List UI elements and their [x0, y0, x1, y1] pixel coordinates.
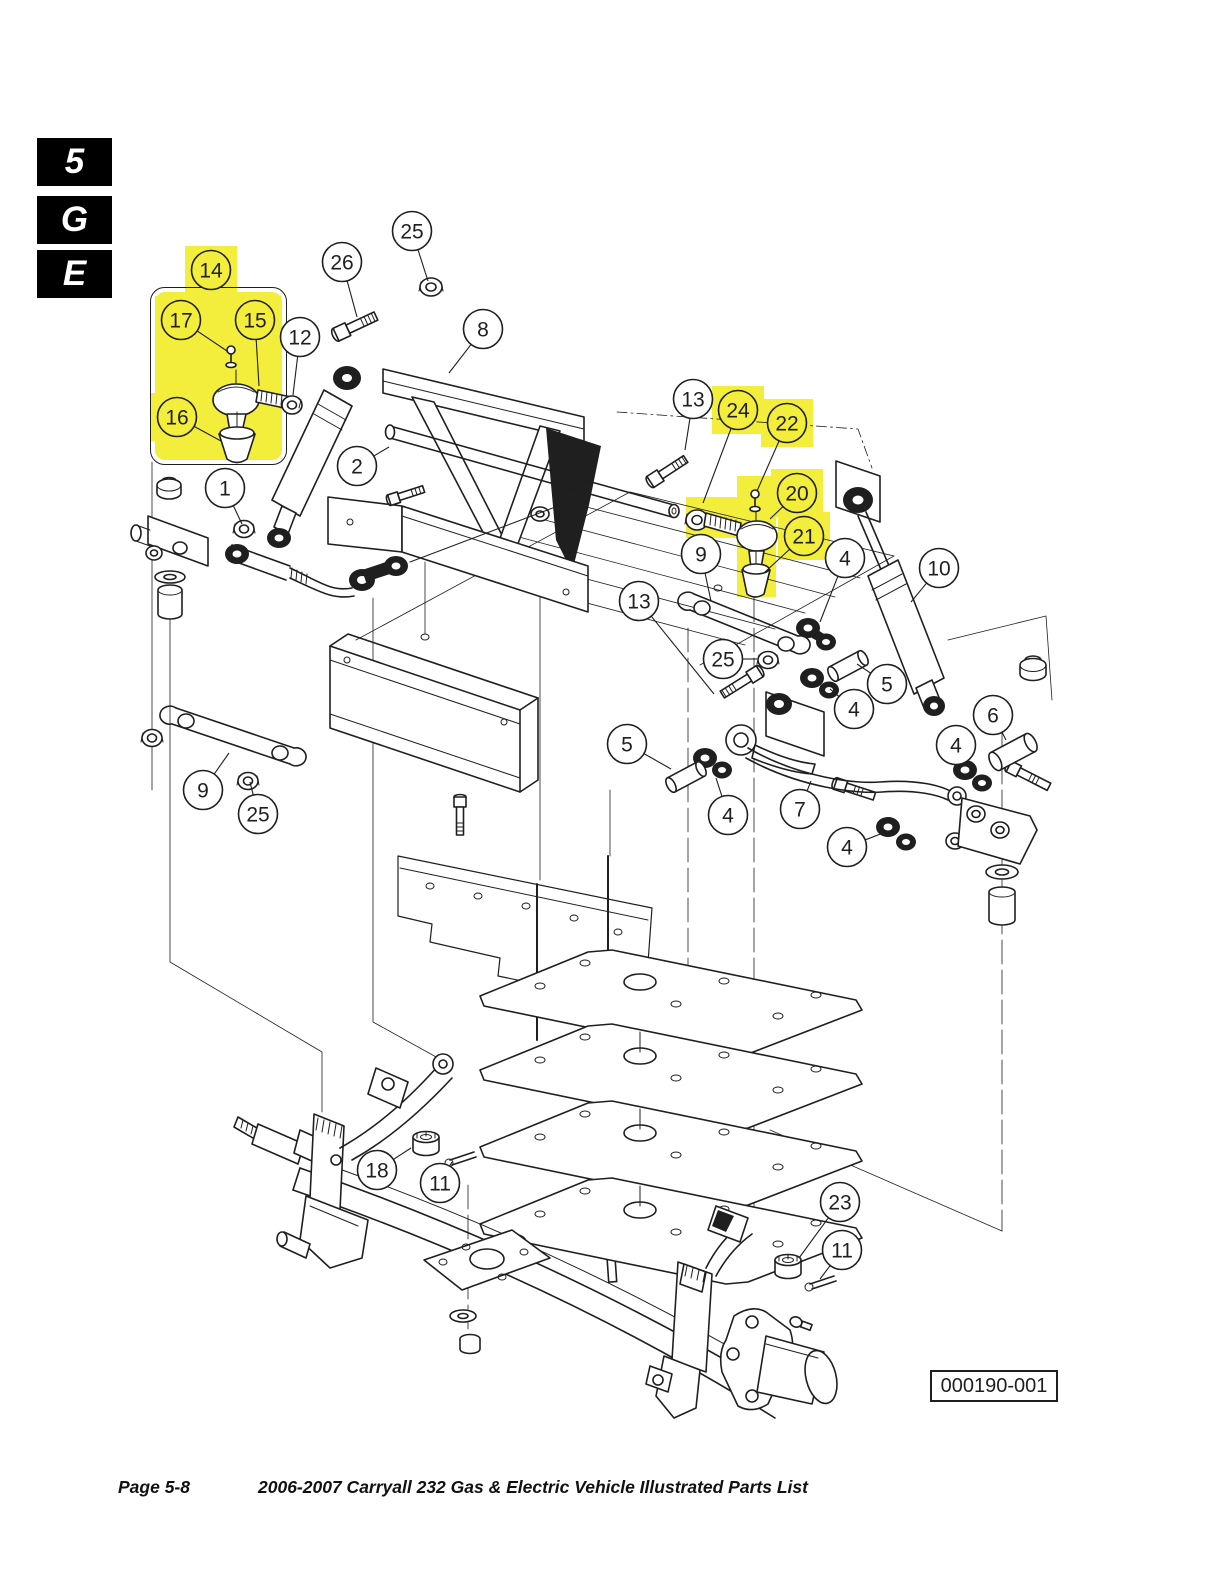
callout-10: 10 [911, 549, 959, 603]
part-crossmember [330, 634, 538, 792]
callout-number: 4 [839, 548, 851, 571]
callout-7: 7 [781, 781, 820, 829]
callout-number: 13 [681, 389, 704, 412]
castle-nut [775, 1255, 801, 1279]
pin-nut [146, 546, 162, 560]
part-hardware-column-left [131, 478, 208, 620]
callout-number: 23 [828, 1192, 851, 1215]
callout-leader [449, 344, 471, 373]
tab-label: 5 [65, 142, 84, 182]
nut [141, 730, 163, 747]
callout-number: 24 [726, 400, 750, 423]
callout-leader [293, 356, 298, 395]
callout-13: 13 [674, 380, 713, 451]
callout-number: 12 [288, 327, 311, 350]
callout-number: 25 [400, 221, 423, 244]
stack-plate [480, 1178, 862, 1284]
callout-4: 4 [830, 689, 874, 729]
callout-14: 14 [192, 251, 231, 290]
callout-number: 16 [165, 407, 188, 430]
callout-26: 26 [323, 243, 362, 318]
callout-leader [644, 754, 671, 769]
callout-number: 9 [695, 544, 707, 567]
callout-number: 18 [365, 1160, 388, 1183]
callout-number: 25 [711, 649, 734, 672]
figure-number-box: 000190-001 [931, 1371, 1057, 1401]
part-bushings-4a [796, 618, 836, 651]
callout-11: 11 [820, 1231, 862, 1280]
callout-number: 11 [429, 1173, 451, 1196]
section-tab-e: E [37, 250, 112, 298]
callout-13: 13 [620, 582, 715, 695]
cotter-pin [445, 1152, 476, 1167]
callout-number: 25 [246, 804, 269, 827]
page-number: Page 5-8 [118, 1477, 190, 1498]
callout-9: 9 [184, 753, 230, 810]
castle-nut [413, 1132, 439, 1156]
callout-18: 18 [358, 1148, 412, 1190]
part-nut-25-mid [757, 652, 779, 669]
figure-number: 000190-001 [941, 1375, 1048, 1397]
part-spacer-5b [664, 760, 709, 794]
callout-number: 7 [794, 799, 806, 822]
callout-number: 21 [792, 526, 815, 549]
callout-number: 2 [351, 456, 363, 479]
callout-leader [865, 833, 883, 840]
callout-leader [214, 753, 229, 774]
part-bolt-small-left [385, 484, 425, 506]
callout-number: 13 [627, 591, 650, 614]
callout-number: 5 [621, 734, 633, 757]
part-bolt-vertical [454, 795, 466, 836]
callout-number: 6 [987, 705, 999, 728]
callout-4: 4 [937, 726, 976, 767]
part-spacer-5a [826, 649, 871, 683]
callout-leader [820, 576, 838, 622]
callout-number: 8 [477, 319, 489, 342]
part-nut-25-lower-left [237, 773, 259, 790]
callout-4: 4 [820, 539, 865, 623]
callout-number: 4 [950, 735, 962, 758]
callout-number: 9 [197, 780, 209, 803]
parts-diagram: 000190-001 14262581715121621132422202194… [0, 0, 1224, 1584]
callout-number: 17 [169, 310, 192, 333]
callout-1: 1 [206, 469, 245, 525]
grease-stud [789, 1315, 813, 1332]
nut [460, 1335, 480, 1354]
part-link-9-lower [141, 706, 306, 766]
shock-eye-bushing [333, 366, 361, 390]
callout-number: 1 [219, 478, 231, 501]
callout-4: 4 [828, 828, 884, 867]
section-tab-g: G [37, 196, 112, 244]
document-title: 2006-2007 Carryall 232 Gas & Electric Ve… [258, 1477, 808, 1498]
lock-nut [1020, 656, 1046, 681]
nut-on-frame [531, 507, 549, 521]
callout-4: 4 [709, 778, 748, 835]
callout-number: 14 [199, 260, 223, 283]
tab-label: G [61, 200, 88, 240]
tab-label: E [63, 254, 86, 294]
callout-leader [347, 281, 357, 317]
callout-number: 4 [722, 805, 734, 828]
part-plate-stack [480, 856, 862, 1284]
callout-leader [716, 778, 722, 796]
callout-leader [911, 583, 927, 602]
callout-number: 11 [831, 1240, 853, 1263]
callout-leader [418, 250, 428, 281]
manual-page: 5 G E [0, 0, 1224, 1584]
callout-number: 26 [330, 252, 353, 275]
part-bolt-26 [330, 310, 379, 343]
callout-number: 15 [243, 310, 266, 333]
callout-5: 5 [608, 725, 672, 770]
callout-6: 6 [974, 696, 1013, 741]
part-jam-nut-12 [281, 396, 302, 414]
callout-2: 2 [338, 447, 390, 486]
part-nut-25-top [419, 278, 443, 296]
callout-11: 11 [421, 1162, 460, 1203]
section-tab-5: 5 [37, 138, 112, 186]
callout-number: 10 [927, 558, 950, 581]
callout-number: 5 [881, 674, 893, 697]
part-nut-1 [233, 521, 255, 538]
callout-number: 22 [775, 413, 798, 436]
spacer [158, 585, 182, 619]
part-bolt-13-upper [644, 454, 689, 489]
callout-25: 25 [393, 212, 432, 282]
lock-nut [157, 478, 181, 500]
callout-8: 8 [449, 310, 503, 374]
callout-leader [233, 506, 242, 524]
spacer [989, 887, 1015, 925]
callout-9: 9 [682, 535, 721, 602]
callout-leader [374, 447, 389, 456]
callout-number: 20 [785, 483, 808, 506]
callout-leader [393, 1148, 411, 1159]
part-spindle-left [234, 1054, 476, 1268]
callout-leader [685, 418, 690, 450]
callout-number: 4 [841, 837, 853, 860]
callout-leader [703, 428, 731, 503]
part-bracket-right [958, 798, 1037, 864]
callout-number: 4 [848, 699, 860, 722]
callout-leader [1002, 732, 1006, 740]
